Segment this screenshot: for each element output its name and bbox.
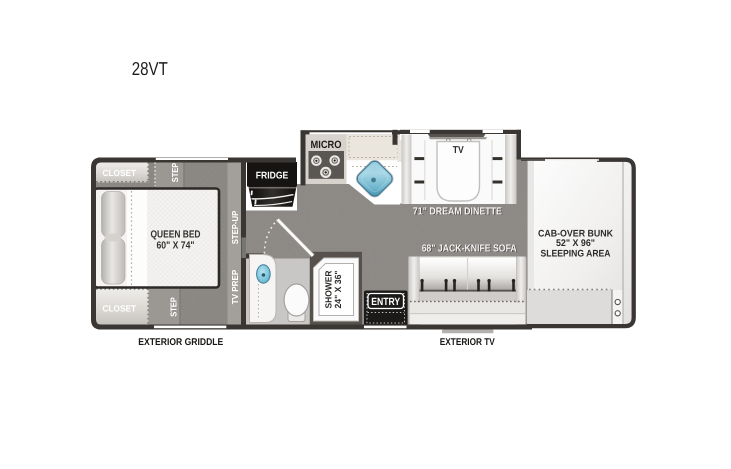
svg-text:TV: TV bbox=[453, 145, 464, 156]
svg-text:SLEEPING AREA: SLEEPING AREA bbox=[541, 249, 611, 260]
svg-text:EXTERIOR TV: EXTERIOR TV bbox=[440, 337, 495, 348]
svg-text:STEP: STEP bbox=[169, 297, 179, 317]
svg-text:CLOSET: CLOSET bbox=[103, 168, 137, 178]
svg-text:CLOSET: CLOSET bbox=[103, 303, 137, 313]
svg-text:60" X 74": 60" X 74" bbox=[157, 240, 195, 251]
svg-text:STEP: STEP bbox=[170, 163, 180, 183]
svg-text:SHOWER: SHOWER bbox=[324, 270, 334, 308]
svg-text:EXTERIOR GRIDDLE: EXTERIOR GRIDDLE bbox=[138, 337, 223, 348]
svg-text:ENTRY: ENTRY bbox=[371, 296, 400, 308]
svg-text:FRIDGE: FRIDGE bbox=[256, 170, 289, 181]
svg-text:STEP-UP: STEP-UP bbox=[230, 211, 240, 245]
svg-text:QUEEN BED: QUEEN BED bbox=[151, 229, 201, 240]
svg-text:MICRO: MICRO bbox=[311, 139, 342, 151]
svg-text:52" X 96": 52" X 96" bbox=[556, 238, 595, 249]
svg-text:28VT: 28VT bbox=[132, 58, 168, 79]
svg-text:68" JACK-KNIFE SOFA: 68" JACK-KNIFE SOFA bbox=[422, 243, 518, 254]
svg-text:24" X 36": 24" X 36" bbox=[333, 271, 343, 309]
svg-text:71" DREAM DINETTE: 71" DREAM DINETTE bbox=[413, 206, 502, 217]
svg-text:TV PREP: TV PREP bbox=[230, 270, 240, 305]
